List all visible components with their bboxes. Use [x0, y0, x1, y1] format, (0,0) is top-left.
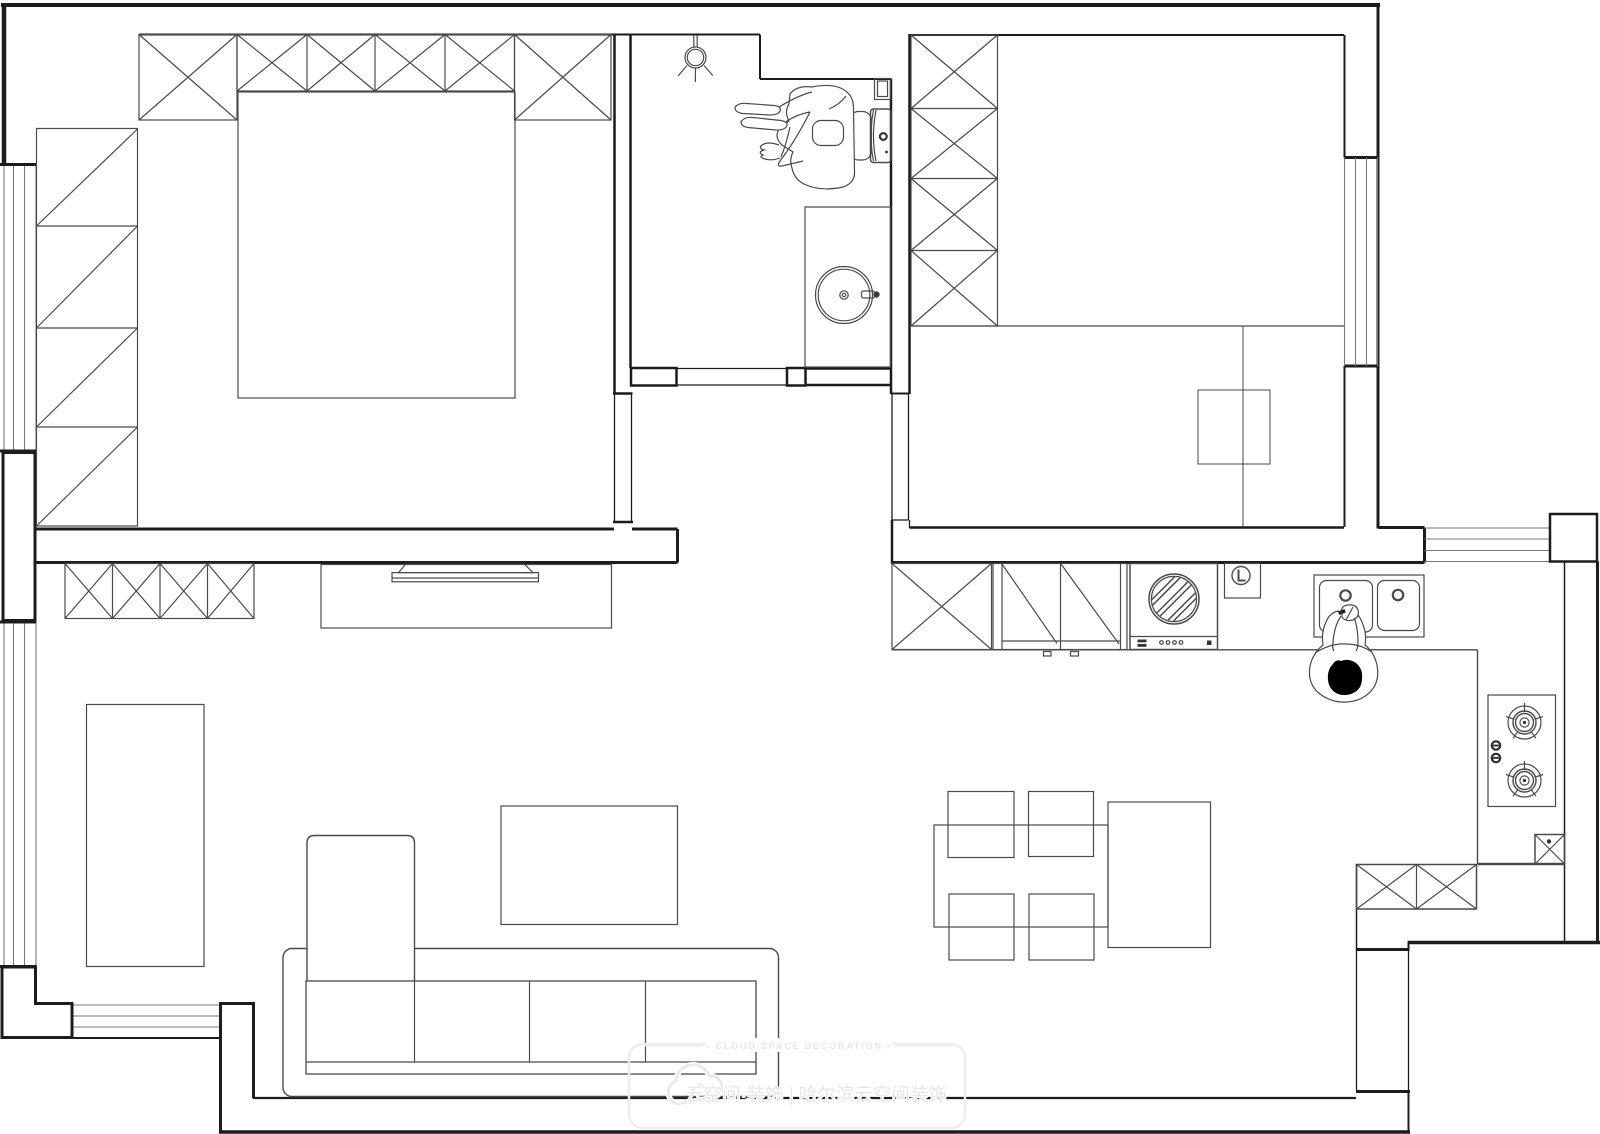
- svg-text:• CLOUD SPACE DECORATION •: • CLOUD SPACE DECORATION •: [706, 1041, 891, 1052]
- svg-text:云空间·装饰 | 哈尔滨云空间装饰: 云空间·装饰 | 哈尔滨云空间装饰: [685, 1084, 947, 1105]
